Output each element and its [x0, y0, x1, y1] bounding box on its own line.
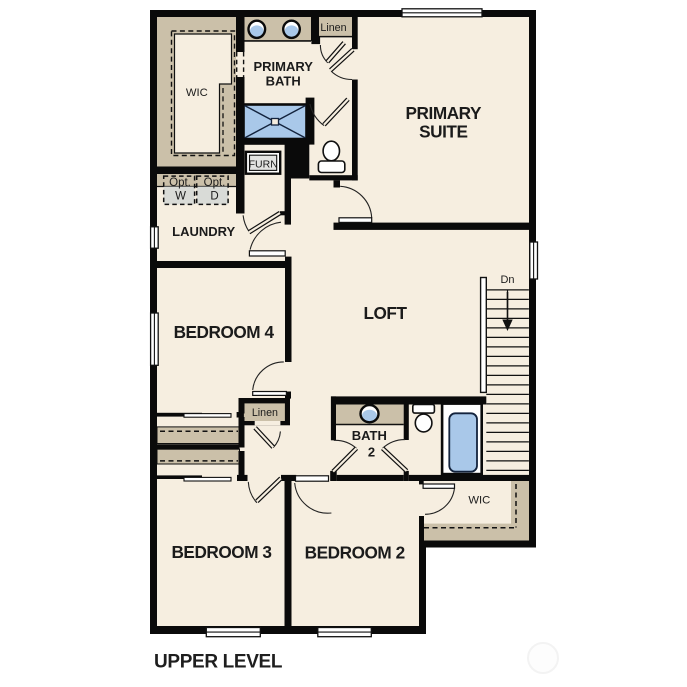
svg-text:BATH: BATH	[266, 73, 301, 88]
svg-text:2: 2	[368, 445, 375, 460]
svg-text:PRIMARY: PRIMARY	[253, 59, 313, 74]
svg-text:Opt.: Opt.	[204, 177, 226, 189]
svg-text:UPPER LEVEL: UPPER LEVEL	[154, 651, 283, 672]
svg-text:PRIMARY: PRIMARY	[406, 103, 482, 123]
svg-text:Linen: Linen	[320, 22, 346, 34]
svg-text:Opt.: Opt.	[169, 177, 191, 189]
svg-text:D: D	[210, 190, 218, 202]
svg-text:LOFT: LOFT	[363, 303, 407, 323]
svg-text:BATH: BATH	[352, 428, 387, 443]
svg-text:WIC: WIC	[186, 87, 208, 99]
svg-text:BEDROOM 3: BEDROOM 3	[171, 542, 271, 562]
svg-text:W: W	[175, 190, 186, 202]
svg-text:BEDROOM 4: BEDROOM 4	[174, 322, 275, 342]
svg-text:Dn: Dn	[500, 274, 514, 286]
svg-text:LAUNDRY: LAUNDRY	[172, 224, 235, 239]
svg-text:Linen: Linen	[252, 407, 278, 419]
svg-text:FURN: FURN	[249, 159, 278, 171]
svg-text:BEDROOM 2: BEDROOM 2	[305, 543, 405, 563]
svg-text:SUITE: SUITE	[419, 122, 467, 142]
svg-text:WIC: WIC	[468, 495, 490, 507]
